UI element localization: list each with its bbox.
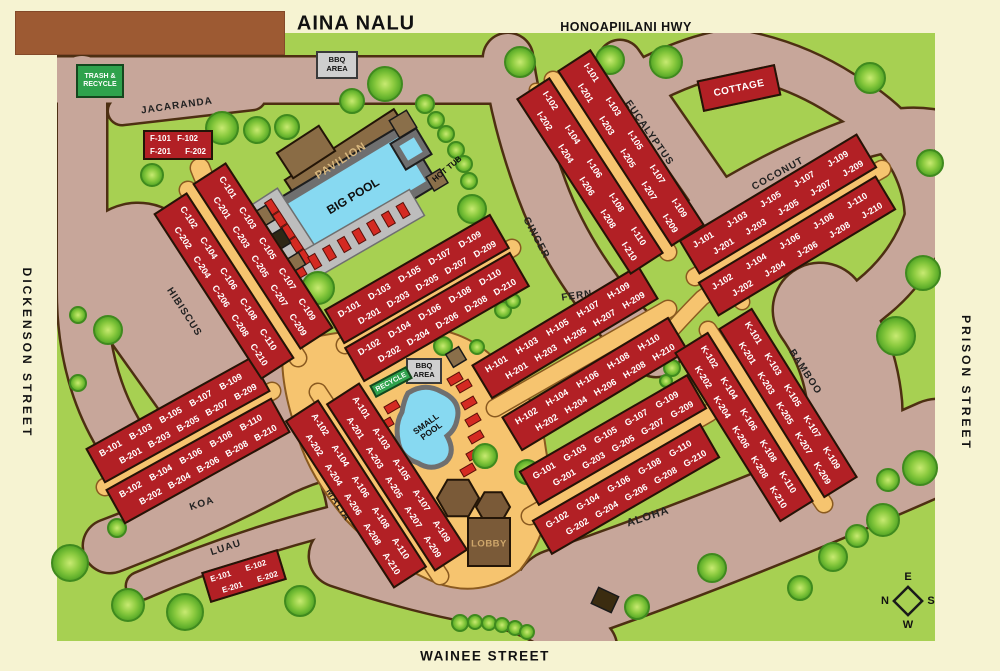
building-F: F-101F-102F-201F-202: [143, 130, 213, 160]
street-label-dickenson: DICKENSON STREET: [20, 268, 34, 439]
compass-west: W: [903, 619, 913, 631]
unit-label: F-202: [185, 147, 206, 156]
page-title: AINA NALU: [297, 13, 415, 36]
street-label-prison: PRISON STREET: [959, 315, 973, 451]
unit-label: F-102: [177, 134, 198, 143]
street-label-honoapiilani-hwy: HONOAPIILANI HWY: [560, 20, 692, 34]
unit-label: F-101: [150, 134, 171, 143]
unit-label: E-202: [256, 569, 279, 584]
masked-logo-banner: [15, 11, 285, 55]
unit-label: E-201: [221, 579, 244, 594]
compass-north: N: [881, 595, 889, 607]
compass-south: S: [927, 595, 934, 607]
bbq-area-sign-top: BBQ AREA: [316, 51, 358, 79]
map-graphics: [0, 0, 1000, 671]
compass-east: E: [904, 571, 911, 583]
unit-label: F-201: [150, 147, 171, 156]
resort-map: AINA NALU HONOAPIILANI HWY WAINEE STREET…: [0, 0, 1000, 671]
lobby-label: LOBBY: [471, 539, 507, 550]
trash-recycle-sign: TRASH & RECYCLE: [76, 64, 124, 98]
bbq-area-sign-mid: BBQ AREA: [406, 358, 442, 384]
street-label-wainee: WAINEE STREET: [420, 649, 550, 664]
